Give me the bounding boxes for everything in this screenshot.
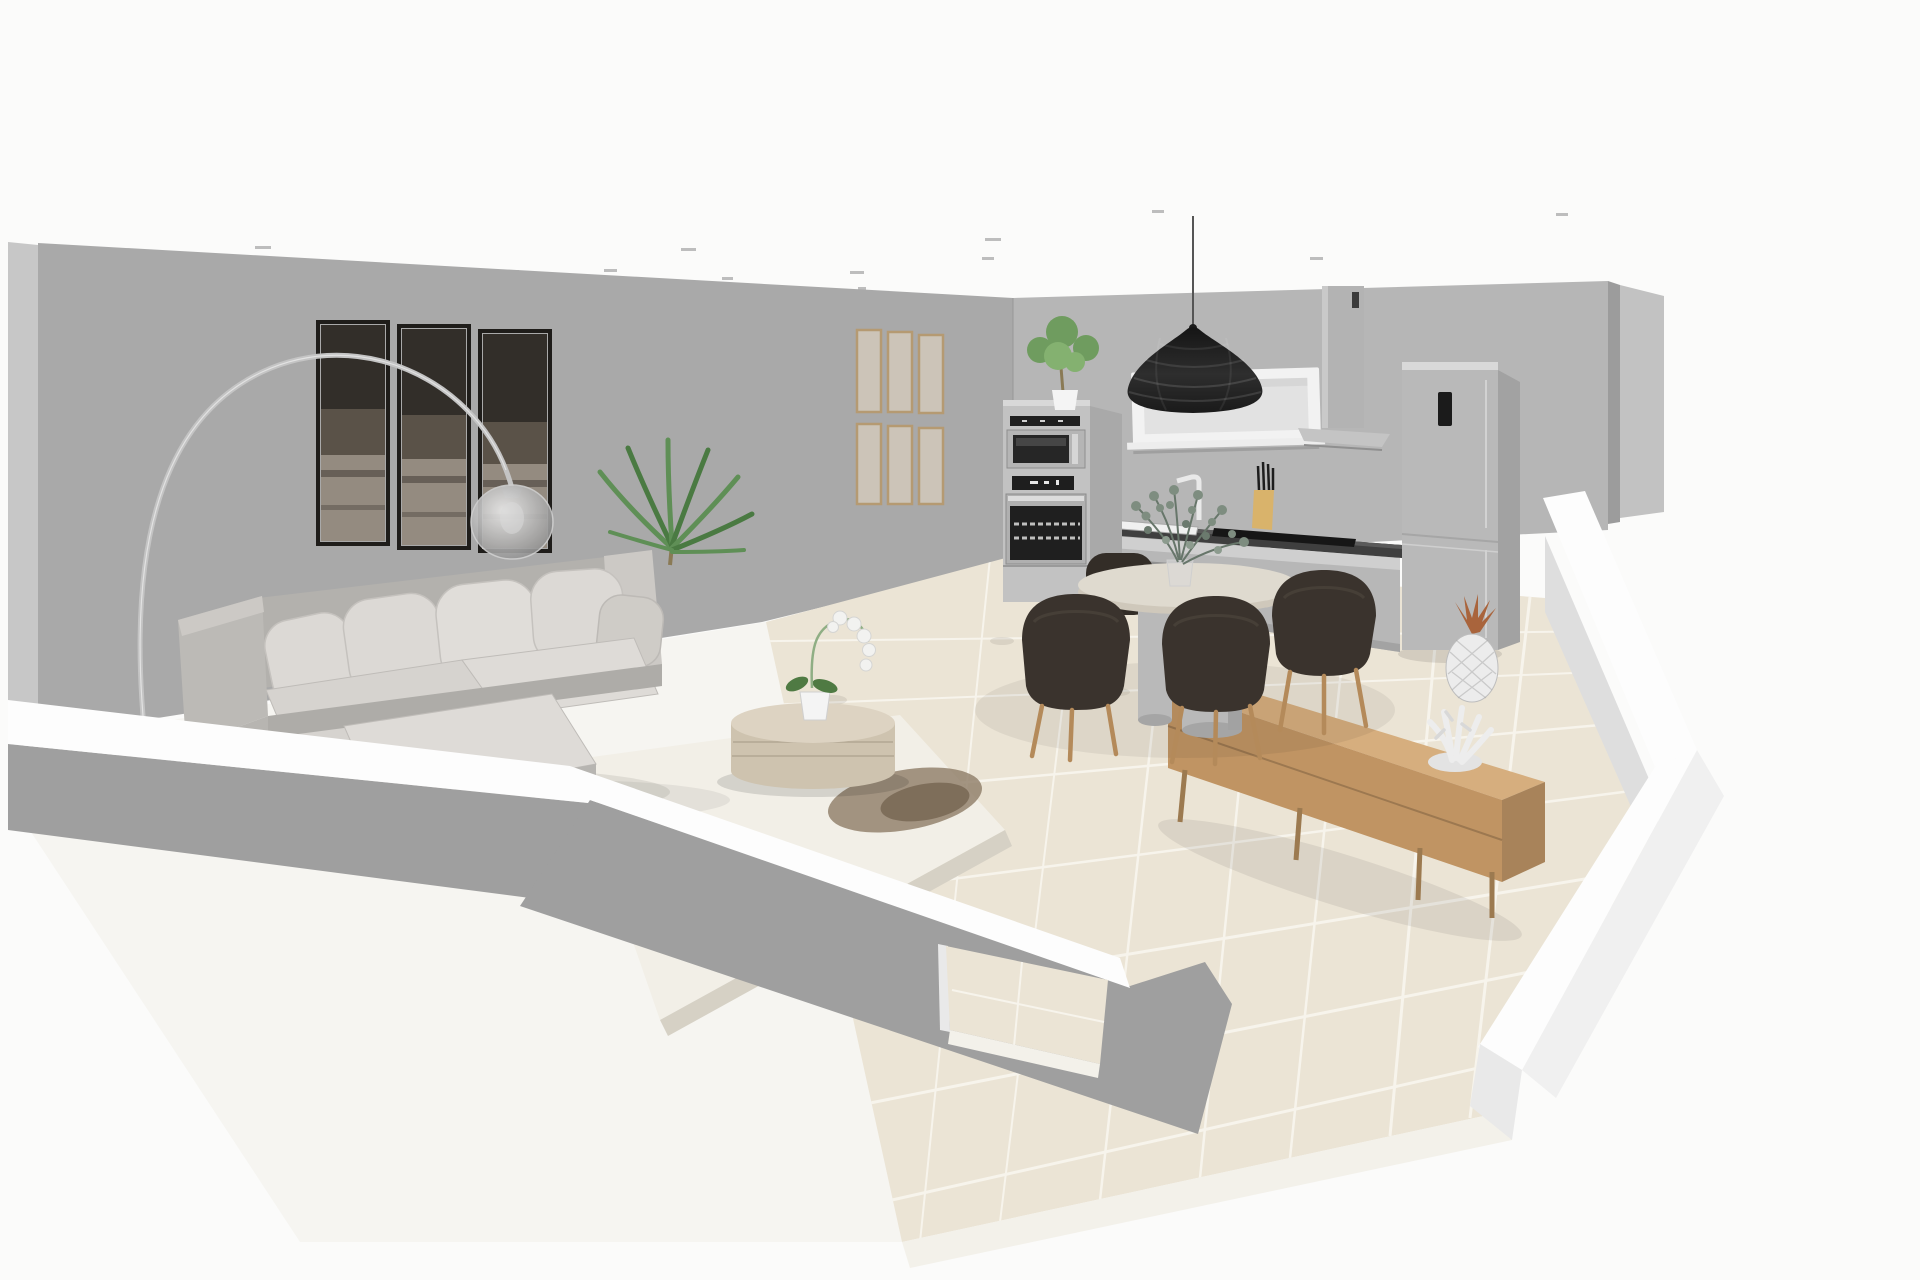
control-tick bbox=[1040, 420, 1045, 422]
art-panel-top bbox=[483, 334, 547, 422]
right-wall-return-light bbox=[1620, 285, 1664, 518]
coffee-table-bottom bbox=[731, 753, 895, 789]
floor-smudge bbox=[990, 637, 1014, 645]
chair-leg bbox=[1215, 712, 1216, 764]
pedestal-foot bbox=[1138, 714, 1172, 726]
sideboard-leg bbox=[1418, 848, 1420, 900]
knife-block-body bbox=[1252, 490, 1274, 530]
oven-handle bbox=[1008, 496, 1084, 501]
oven-glass bbox=[1010, 506, 1082, 560]
ceiling-light-icon bbox=[850, 271, 864, 274]
display-tick bbox=[1044, 481, 1049, 484]
ceiling-light-icon bbox=[982, 257, 994, 260]
orchid-pot bbox=[800, 692, 830, 720]
art-streak bbox=[321, 505, 385, 510]
left-wall-edge bbox=[8, 242, 38, 748]
art-panel-low bbox=[402, 459, 466, 545]
ceiling-light-icon bbox=[604, 269, 617, 272]
gallery-frame bbox=[857, 330, 881, 412]
chair-shell bbox=[1162, 596, 1270, 712]
gallery-frame bbox=[888, 332, 912, 412]
display-tick bbox=[1030, 481, 1038, 484]
gallery-frame bbox=[919, 428, 943, 504]
ceiling-light-icon bbox=[722, 277, 733, 280]
art-panel-mid bbox=[321, 409, 385, 455]
ceiling-light-icon bbox=[1556, 213, 1568, 216]
hood-highlight bbox=[1322, 286, 1328, 428]
microwave-handle bbox=[1072, 434, 1078, 464]
fridge-control-panel bbox=[1438, 392, 1452, 426]
gallery-frame bbox=[888, 426, 912, 504]
chair-shell bbox=[1272, 570, 1376, 676]
microwave-reflection bbox=[1016, 438, 1066, 446]
plant-pot bbox=[1052, 390, 1078, 410]
oven-display bbox=[1012, 476, 1074, 490]
art-streak bbox=[402, 512, 466, 517]
fridge[interactable]: refrigerator bbox=[1398, 362, 1520, 663]
hood-vent-icon bbox=[1352, 292, 1359, 308]
knife bbox=[1263, 462, 1264, 490]
chair-leg bbox=[1070, 710, 1072, 760]
display-tick bbox=[1056, 480, 1059, 485]
fridge-side bbox=[1498, 370, 1520, 650]
art-panel-top bbox=[321, 325, 385, 409]
ceiling-light-icon bbox=[1310, 257, 1323, 260]
control-tick bbox=[1058, 420, 1063, 422]
knife bbox=[1268, 464, 1269, 490]
gallery-frame bbox=[857, 424, 881, 504]
ceiling-light-icon bbox=[255, 246, 271, 249]
foliage bbox=[1065, 352, 1085, 372]
art-panel-mid bbox=[402, 415, 466, 459]
knife bbox=[1258, 466, 1259, 490]
3d-room-view[interactable]: ceiling spotlights back wall kitchen wal… bbox=[0, 0, 1920, 1280]
art-panel-low bbox=[321, 455, 385, 541]
room-render-canvas[interactable]: ceiling spotlights back wall kitchen wal… bbox=[0, 0, 1920, 1280]
pineapple-body bbox=[1446, 634, 1498, 702]
ceiling-light-icon bbox=[985, 238, 1001, 241]
control-tick bbox=[1022, 420, 1027, 422]
ceiling-light-icon bbox=[1152, 210, 1164, 213]
gallery-frame bbox=[919, 335, 943, 413]
art-streak bbox=[321, 470, 385, 477]
art-panel bbox=[399, 326, 469, 548]
art-streak bbox=[402, 476, 466, 483]
fridge-top bbox=[1402, 362, 1498, 370]
right-wall-return-dark bbox=[1608, 281, 1620, 524]
glass-vase bbox=[1167, 560, 1193, 586]
ceiling-light-icon bbox=[681, 248, 696, 251]
lamp-bulb bbox=[500, 502, 524, 534]
